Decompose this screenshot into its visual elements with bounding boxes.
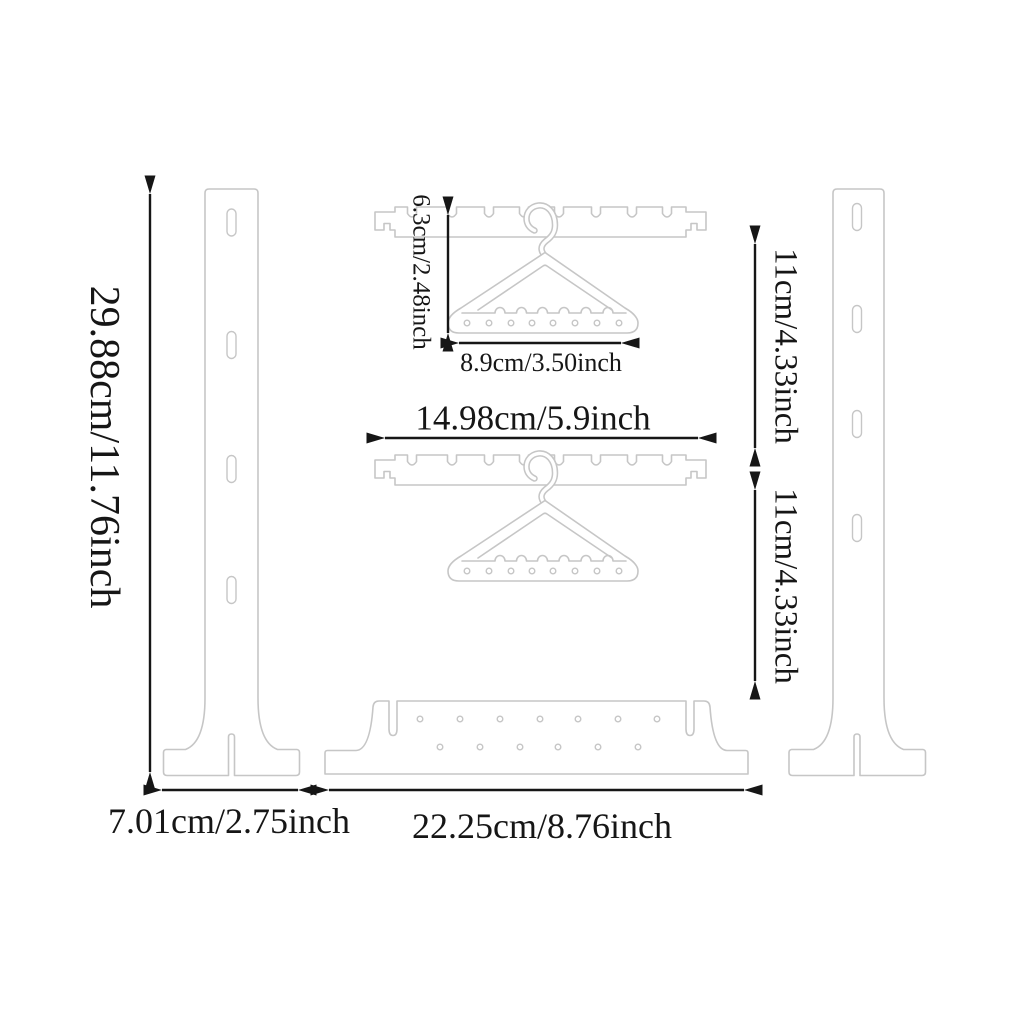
- line-art-canvas: [0, 0, 1024, 1024]
- right-side-panel-outline: [789, 189, 926, 776]
- bar-width-label: 14.98cm/5.9inch: [415, 401, 650, 436]
- hanger-height-label: 6.3cm/2.48inch: [409, 194, 434, 350]
- tier-gap-lower-label: 11cm/4.33inch: [769, 488, 802, 684]
- right-side-panel: [789, 189, 926, 776]
- base-panel-outline: [325, 701, 748, 774]
- lower-tier: [375, 453, 706, 581]
- base-panel: [325, 701, 748, 774]
- left-side-panel: [164, 189, 300, 776]
- dimension-diagram: 29.88cm/11.76inch 6.3cm/2.48inch 8.9cm/3…: [0, 0, 1024, 1024]
- hanger-width-label: 8.9cm/3.50inch: [460, 350, 622, 376]
- panel-height-label: 29.88cm/11.76inch: [83, 286, 125, 609]
- base-width-label: 22.25cm/8.76inch: [412, 808, 672, 844]
- foot-width-label: 7.01cm/2.75inch: [108, 803, 350, 839]
- tier-gap-upper-label: 11cm/4.33inch: [769, 248, 802, 444]
